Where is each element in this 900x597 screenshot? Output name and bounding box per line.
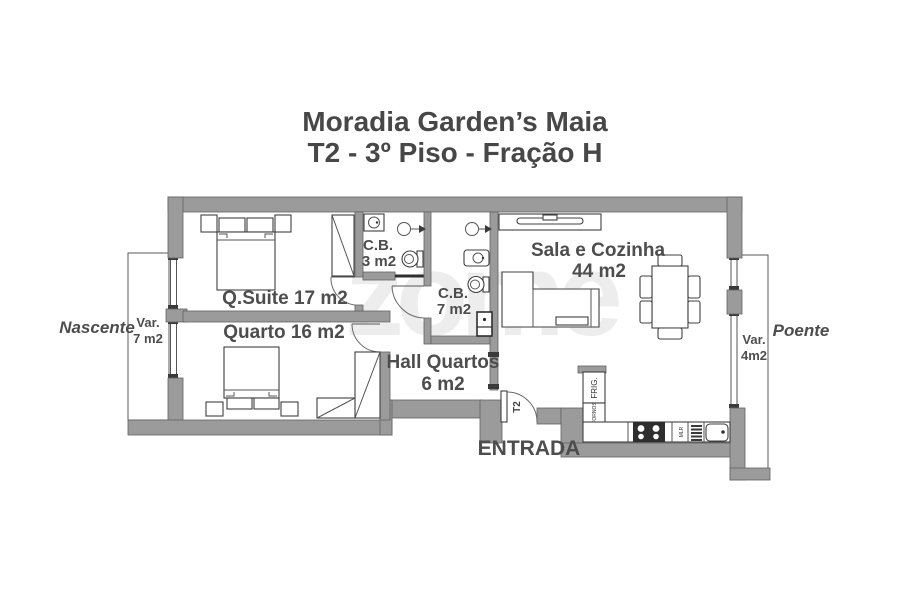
fridge-label: FRIG. <box>590 377 599 398</box>
orientation-right-label: Poente <box>773 321 830 340</box>
cb3-label-line2: 3 m2 <box>362 253 396 270</box>
hall-label-line2: 6 m2 <box>421 374 464 395</box>
suite-label: Q.Suite 17 m2 <box>222 288 348 309</box>
entry-door-label: T2 <box>512 401 523 413</box>
cb7-label-line1: C.B. <box>438 285 468 302</box>
bedroom-label: Quarto 16 m2 <box>223 322 344 343</box>
bedroom-wardrobe-low <box>317 398 355 418</box>
cb3-washbasin <box>364 214 384 231</box>
tv-sideboard <box>499 214 601 230</box>
fridge: FRIG. <box>583 372 605 403</box>
living-label-line2: 44 m2 <box>572 261 626 282</box>
living-label-line1: Sala e Cozinha <box>531 240 666 261</box>
stove <box>633 422 665 442</box>
floorplan-canvas: zome Moradia Garden’s Maia T2 - 3º Piso … <box>0 0 900 597</box>
cb3-toilet <box>402 251 423 267</box>
orientation-left-label: Nascente <box>59 318 135 337</box>
cb7-bidet <box>468 277 489 293</box>
ovens-label: FORNOS <box>592 402 598 424</box>
ovens: FORNOS <box>583 402 605 424</box>
cb7-washbasin <box>464 250 489 266</box>
entrance-label: ENTRADA <box>478 437 581 460</box>
balcony-right-label-line1: Var. <box>742 332 765 347</box>
hall-label-line1: Hall Quartos <box>387 352 500 373</box>
bedroom-wardrobe-tall <box>355 352 380 418</box>
plan-title-line2: T2 - 3º Piso - Fração H <box>308 137 603 168</box>
cb7-label-line2: 7 m2 <box>437 301 471 318</box>
balcony-right-label-line2: 4m2 <box>741 348 767 363</box>
floorplan-page: zome Moradia Garden’s Maia T2 - 3º Piso … <box>0 0 900 597</box>
kitchen-sink <box>706 424 728 441</box>
suite-wardrobe <box>332 215 354 276</box>
plan-title-line1: Moradia Garden’s Maia <box>302 106 608 137</box>
balcony-left-label-line1: Var. <box>136 315 159 330</box>
water-heater <box>477 312 492 336</box>
cb3-label-line1: C.B. <box>363 237 393 254</box>
washer-label: MLR <box>679 426 685 437</box>
balcony-left-label-line2: 7 m2 <box>133 331 163 346</box>
